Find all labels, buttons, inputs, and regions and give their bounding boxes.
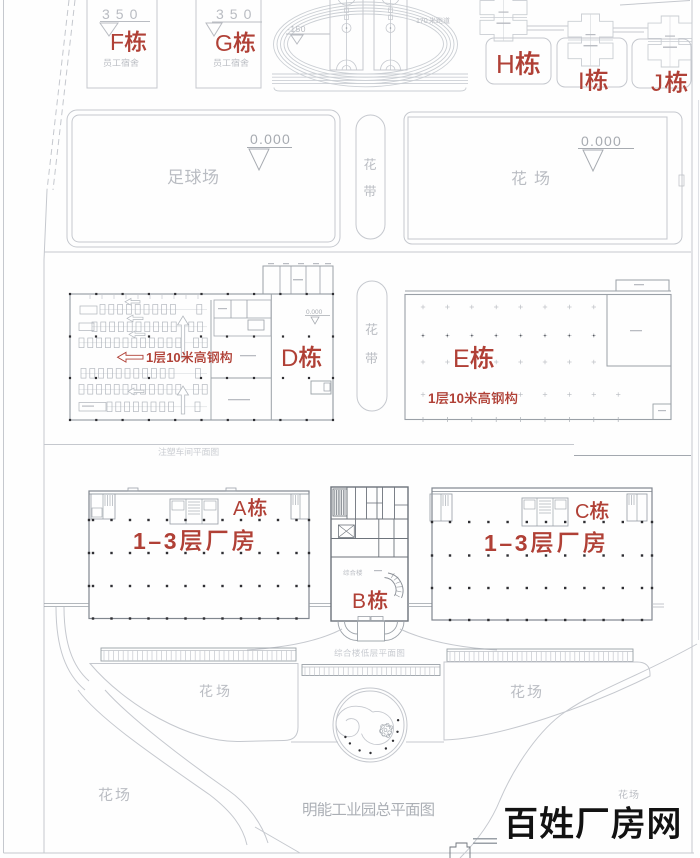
svg-text:1: 1 bbox=[146, 350, 153, 365]
svg-text:170: 170 bbox=[416, 18, 428, 25]
svg-text:350: 350 bbox=[102, 6, 143, 22]
svg-text:B: B bbox=[352, 590, 366, 613]
svg-text:D: D bbox=[281, 345, 298, 372]
svg-text:1: 1 bbox=[428, 391, 436, 406]
svg-text:I: I bbox=[578, 68, 585, 95]
svg-text:E: E bbox=[453, 345, 470, 373]
svg-text:H: H bbox=[496, 49, 515, 79]
svg-text:A: A bbox=[233, 498, 247, 520]
svg-text:F: F bbox=[110, 29, 124, 55]
svg-text:10: 10 bbox=[166, 350, 180, 365]
svg-text:0.000: 0.000 bbox=[306, 309, 323, 316]
svg-text:1–3: 1–3 bbox=[133, 528, 179, 554]
svg-text:350: 350 bbox=[216, 6, 257, 22]
svg-text:G: G bbox=[215, 30, 233, 56]
svg-text:0.000: 0.000 bbox=[250, 131, 291, 147]
svg-text:C: C bbox=[575, 501, 589, 523]
svg-text:J: J bbox=[651, 70, 663, 97]
svg-text:-150: -150 bbox=[287, 24, 306, 34]
svg-text:1–3: 1–3 bbox=[484, 530, 530, 556]
svg-text:10: 10 bbox=[449, 391, 464, 406]
svg-text:0.000: 0.000 bbox=[581, 133, 622, 149]
